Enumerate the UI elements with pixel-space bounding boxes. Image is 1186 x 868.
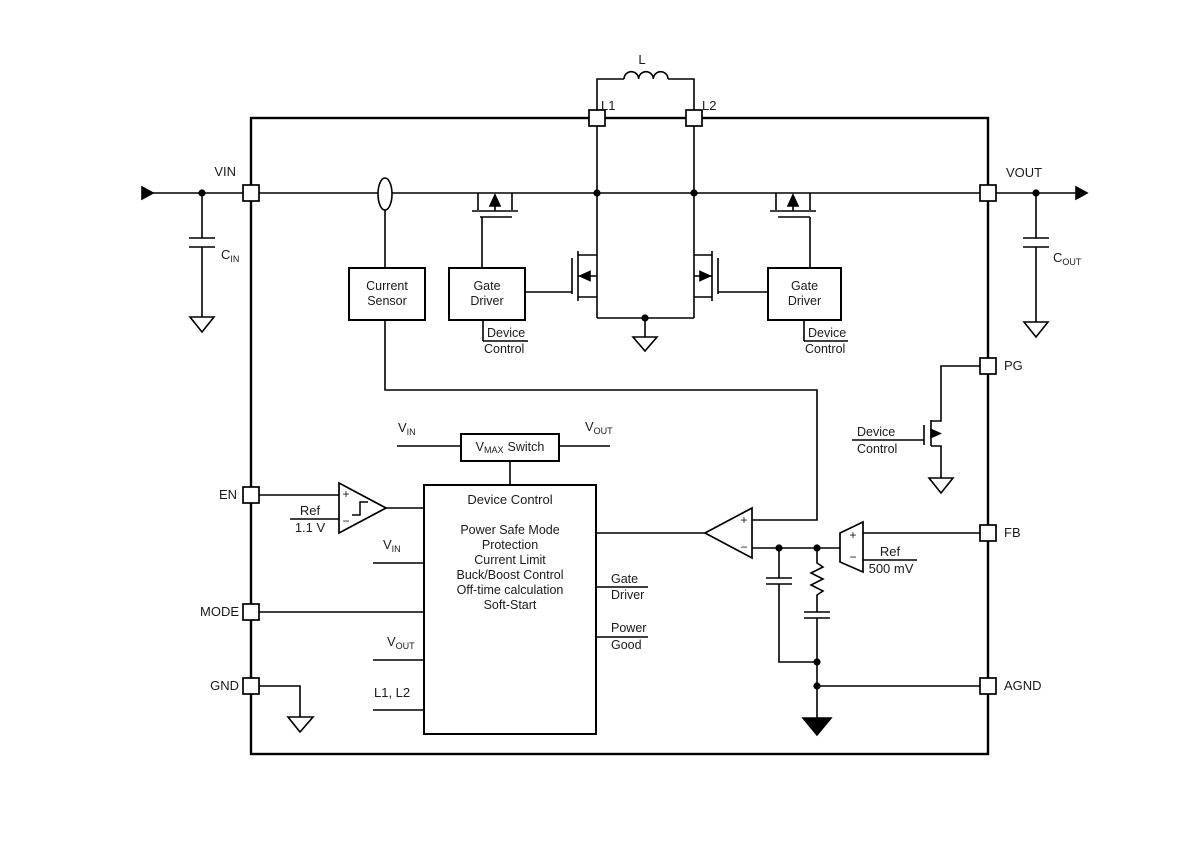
mosfet-lowside-right: [694, 251, 768, 301]
v: V: [398, 420, 407, 435]
pin-label-fb: FB: [1004, 526, 1021, 539]
dc-l1l2-label: L1, L2: [374, 686, 410, 699]
dc-function: Soft-Start: [425, 598, 595, 613]
pin-en: [243, 487, 259, 503]
cin-label: CIN: [221, 248, 239, 263]
dc-function: Power Safe Mode: [425, 523, 595, 538]
current-sensor-block: Current Sensor: [348, 267, 426, 321]
wire-gnd: [259, 686, 300, 717]
v-sub: IN: [392, 544, 401, 554]
pin-gnd: [243, 678, 259, 694]
inductor-coil: [624, 72, 668, 79]
ref-fb-top: Ref: [870, 545, 910, 558]
vmax-sub: MAX: [484, 443, 504, 458]
mosfet-lowside-left: [522, 251, 597, 301]
vin-arrow: [142, 187, 153, 199]
dc-function: Off-time calculation: [425, 583, 595, 598]
fb-amp-plus: +: [847, 528, 859, 542]
cin-sub: IN: [230, 254, 239, 264]
ground-symbol-cout: [1024, 322, 1048, 337]
capacitor-cout: [1023, 193, 1049, 322]
pin-label-pg: PG: [1004, 359, 1023, 372]
gate-driver-left-line1: Gate: [473, 279, 500, 294]
v: V: [387, 634, 396, 649]
ground-symbol-power: [633, 337, 657, 351]
pg-tag-control: Control: [857, 443, 897, 456]
cout-name: C: [1053, 250, 1062, 265]
inductor-label: L: [632, 53, 652, 66]
pin-label-vin: VIN: [193, 165, 236, 178]
gate-driver-right-line1: Gate: [791, 279, 818, 294]
gate-driver-right-line2: Driver: [788, 294, 821, 309]
v: V: [585, 419, 594, 434]
pin-l2: [686, 110, 702, 126]
gd-right-tag-device: Device: [808, 327, 846, 340]
vmax-vin-label: VIN: [398, 421, 416, 436]
pin-pg: [980, 358, 996, 374]
pin-mode: [243, 604, 259, 620]
wire-l2-up: [668, 79, 694, 110]
pin-label-vout: VOUT: [1006, 166, 1042, 179]
capacitor-cin: [189, 193, 215, 317]
cout-label: COUT: [1053, 251, 1081, 266]
tag-driver: Driver: [611, 589, 644, 602]
pin-vin: [243, 185, 259, 201]
compensation-resistor: [811, 548, 823, 612]
vmax-rest: Switch: [508, 440, 545, 455]
vout-arrow: [1076, 187, 1087, 199]
pin-label-l1: L1: [601, 99, 615, 112]
ref-en-bottom: 1.1 V: [288, 521, 332, 534]
pin-fb: [980, 525, 996, 541]
dc-function: Current Limit: [425, 553, 595, 568]
pin-label-en: EN: [197, 488, 237, 501]
ground-symbol-gnd-pin: [288, 717, 313, 732]
device-control-title: Device Control: [425, 492, 595, 507]
v-sub: OUT: [396, 641, 415, 651]
ground-symbol-cin: [190, 317, 214, 332]
vmax-v: V: [476, 440, 484, 455]
v: V: [383, 537, 392, 552]
pin-label-mode: MODE: [187, 605, 239, 618]
cout-sub: OUT: [1062, 257, 1081, 267]
en-comp-plus: +: [340, 487, 352, 501]
device-control-block: Device Control Power Safe Mode Protectio…: [423, 484, 597, 735]
vmax-switch-block: VMAXSwitch: [460, 433, 560, 462]
block-diagram-canvas: VIN VOUT L1 L2 PG FB AGND EN MODE GND L …: [0, 0, 1186, 868]
ground-symbol-analog: [803, 718, 831, 735]
current-sensor-line2: Sensor: [367, 294, 407, 309]
compensation-cap1: [766, 548, 817, 662]
gd-left-tag-device: Device: [487, 327, 525, 340]
v-sub: OUT: [594, 426, 613, 436]
gate-driver-left-block: Gate Driver: [448, 267, 526, 321]
dc-function: Buck/Boost Control: [425, 568, 595, 583]
pin-label-gnd: GND: [197, 679, 239, 692]
v-sub: IN: [407, 427, 416, 437]
pin-vout: [980, 185, 996, 201]
fb-amp-minus: −: [847, 550, 859, 564]
tag-gate: Gate: [611, 573, 638, 586]
package-pins: [243, 110, 996, 694]
vmax-vout-label: VOUT: [585, 420, 613, 435]
ref-fb-bottom: 500 mV: [864, 562, 918, 575]
ref-en-top: Ref: [290, 504, 330, 517]
tag-power: Power: [611, 622, 646, 635]
cin-name: C: [221, 247, 230, 262]
en-comp-minus: −: [340, 514, 352, 528]
pin-label-l2: L2: [702, 99, 716, 112]
gate-driver-left-line2: Driver: [470, 294, 503, 309]
mosfet-highside-right: [770, 193, 816, 267]
current-sense-element: [378, 178, 392, 210]
pin-label-agnd: AGND: [1004, 679, 1042, 692]
gate-driver-right-block: Gate Driver: [767, 267, 842, 321]
gd-right-tag-control: Control: [805, 343, 845, 356]
tag-good: Good: [611, 639, 642, 652]
dc-function: Protection: [425, 538, 595, 553]
dc-vin-label: VIN: [383, 538, 401, 553]
mosfet-highside-left: [472, 193, 518, 267]
pin-agnd: [980, 678, 996, 694]
dc-vout-label: VOUT: [387, 635, 415, 650]
main-comp-plus: +: [738, 513, 750, 527]
pg-tag-device: Device: [857, 426, 895, 439]
current-sensor-line1: Current: [366, 279, 408, 294]
main-comp-minus: −: [738, 540, 750, 554]
gd-left-tag-control: Control: [484, 343, 524, 356]
